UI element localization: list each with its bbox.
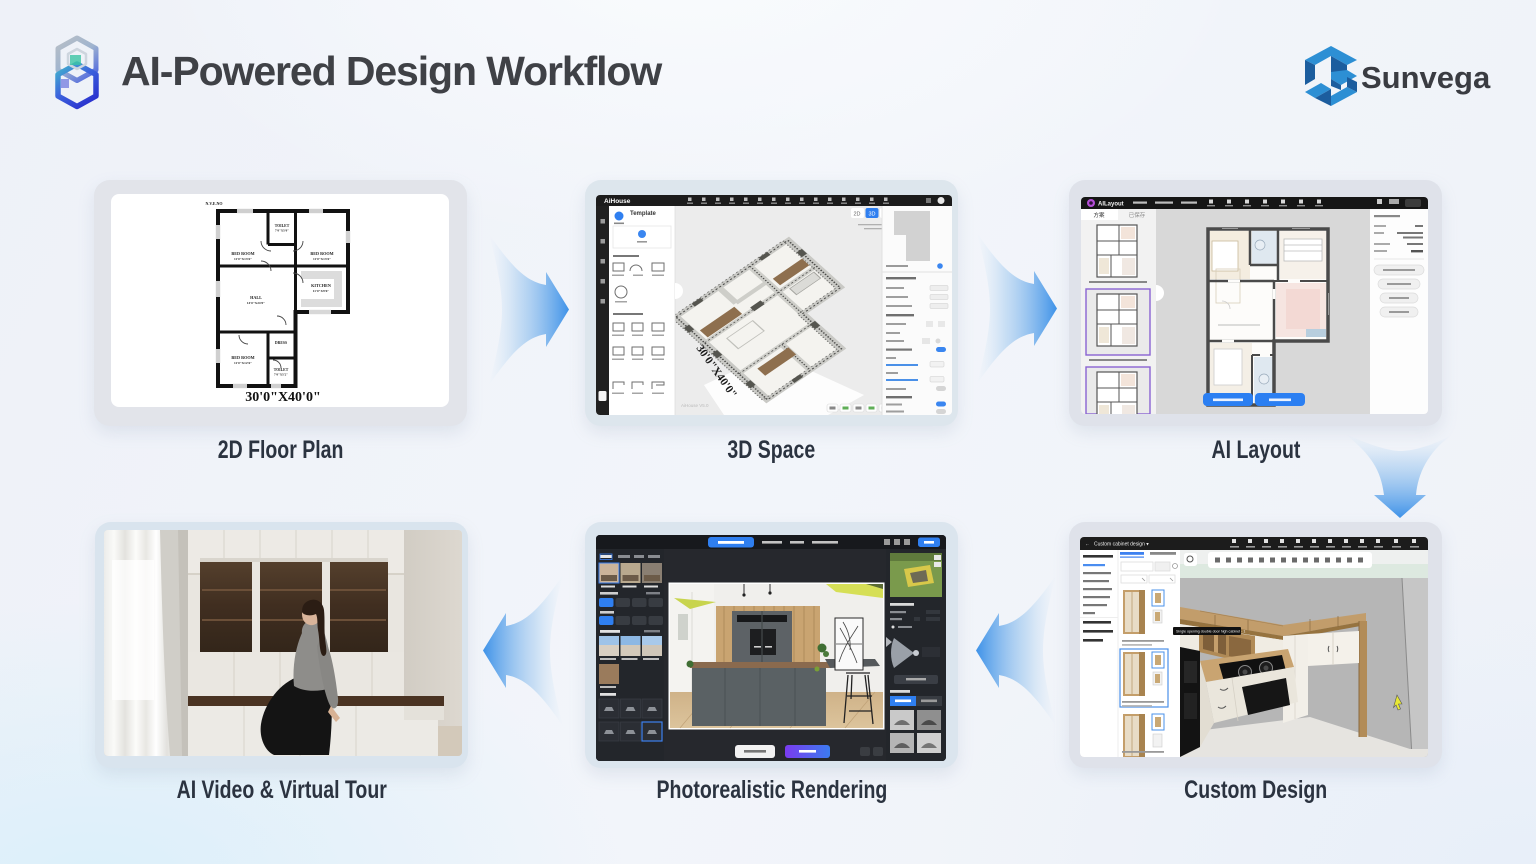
- svg-text:11'0"X13'6": 11'0"X13'6": [234, 257, 252, 261]
- svg-text:11'0"X12'6": 11'0"X12'6": [234, 361, 252, 365]
- svg-text:BED ROOM: BED ROOM: [231, 355, 254, 360]
- svg-text:KITCHEN: KITCHEN: [311, 283, 331, 288]
- svg-text:7'0"X5'2": 7'0"X5'2": [274, 373, 288, 377]
- svg-text:AiHouse V5.0: AiHouse V5.0: [681, 403, 709, 408]
- svg-text:2D: 2D: [853, 212, 860, 218]
- svg-text:30'0"X40'0": 30'0"X40'0": [245, 390, 320, 405]
- svg-text:AILayout: AILayout: [1098, 202, 1124, 208]
- svg-text:Template: Template: [630, 211, 657, 217]
- svg-text:←: ←: [1085, 542, 1090, 548]
- svg-text:7'0"X5'0": 7'0"X5'0": [275, 229, 289, 233]
- svg-text:11'0"X13'6": 11'0"X13'6": [313, 257, 331, 261]
- svg-text:11'0"X9'6": 11'0"X9'6": [313, 289, 330, 293]
- svg-text:3D: 3D: [868, 212, 875, 218]
- svg-text:已保存: 已保存: [1129, 211, 1146, 219]
- svg-text:HALL: HALL: [250, 295, 262, 300]
- svg-text:AiHouse: AiHouse: [604, 198, 631, 205]
- svg-text:N.V.E.NO: N.V.E.NO: [206, 201, 223, 206]
- svg-text:Single opening double door hig: Single opening double door high cabinet …: [1176, 630, 1245, 634]
- svg-text:TOILET: TOILET: [274, 368, 289, 372]
- svg-text:14'0"X24'0": 14'0"X24'0": [247, 301, 265, 305]
- svg-text:Custom cabinet design ▾: Custom cabinet design ▾: [1094, 542, 1149, 548]
- svg-text:DRESS: DRESS: [275, 341, 287, 345]
- svg-text:TOILET: TOILET: [275, 224, 290, 228]
- svg-text:方案: 方案: [1093, 211, 1105, 219]
- svg-text:BED ROOM: BED ROOM: [231, 251, 254, 256]
- svg-text:BED ROOM: BED ROOM: [310, 251, 333, 256]
